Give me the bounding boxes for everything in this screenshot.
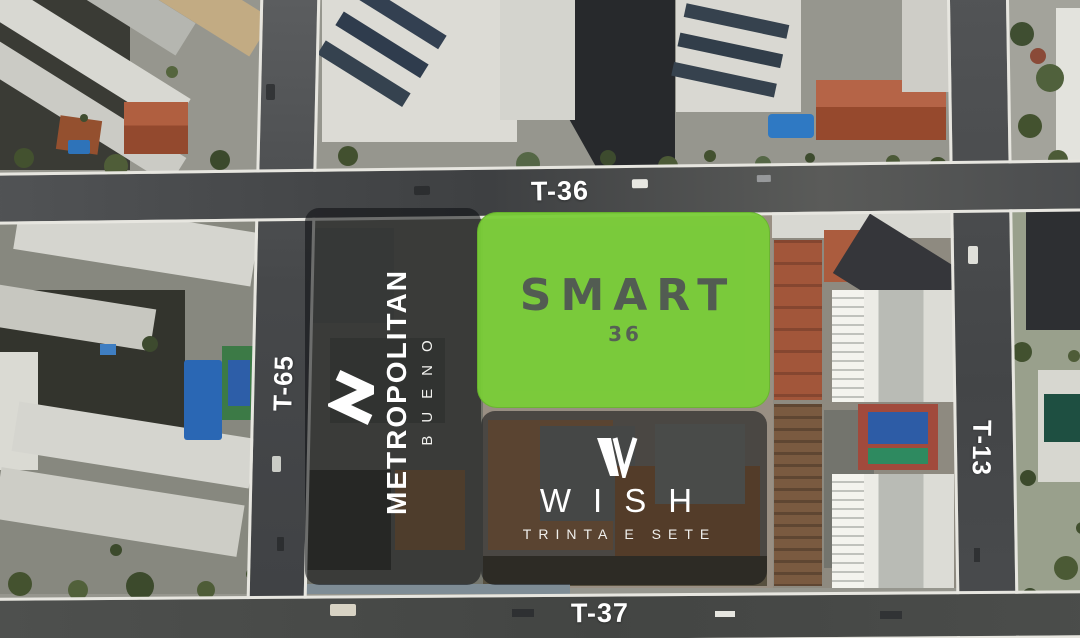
building — [500, 0, 575, 120]
pool — [1044, 394, 1080, 442]
warehouse-roof — [774, 404, 822, 586]
street-label-t13: T-13 — [936, 402, 1027, 493]
tree-cluster — [1012, 342, 1032, 362]
building — [902, 0, 954, 92]
tree-cluster — [14, 148, 34, 168]
balconies — [832, 474, 864, 588]
sports-court — [858, 404, 938, 470]
canopy — [300, 584, 570, 594]
street-label-t37: T-37 — [545, 596, 655, 631]
smart-brand-text: SMART — [511, 274, 736, 318]
street-t13 — [947, 0, 1019, 638]
street-label-t65: T-65 — [237, 337, 329, 429]
building — [1026, 210, 1080, 330]
tree-cluster — [338, 146, 358, 166]
aerial-site-map: SMART 36 METROPOLITAN BUENO WISH TRINTA … — [0, 0, 1080, 638]
wish-logo: WISH TRINTA E SETE — [486, 436, 746, 566]
pool — [768, 114, 814, 138]
smart-logo: SMART 36 — [477, 212, 770, 408]
building — [1056, 8, 1080, 160]
wish-brand-text: WISH — [518, 484, 714, 517]
balconies — [832, 290, 864, 402]
metropolitan-logo: METROPOLITAN BUENO — [328, 253, 458, 533]
tower-building — [832, 290, 954, 402]
red-tree — [1030, 48, 1046, 64]
metropolitan-m-chevron-icon — [328, 360, 374, 426]
terracotta-roof — [774, 240, 822, 400]
tree-cluster — [1010, 22, 1034, 46]
smart-lot-highlight: SMART 36 — [477, 212, 770, 408]
tree-cluster — [8, 572, 32, 596]
car — [414, 186, 430, 195]
truck — [330, 604, 356, 616]
street-label-t36: T-36 — [505, 173, 616, 209]
metropolitan-subtitle-text: BUENO — [419, 327, 436, 458]
car — [266, 84, 275, 100]
court-center — [868, 412, 928, 444]
metropolitan-brand-text: METROPOLITAN — [383, 269, 411, 517]
wish-subtitle-text: TRINTA E SETE — [516, 526, 716, 542]
pool — [868, 448, 928, 464]
terracotta-roof — [124, 102, 188, 154]
street-t37 — [0, 590, 1080, 638]
pool — [68, 140, 90, 154]
pool — [100, 344, 116, 355]
smart-unit-number: 36 — [605, 322, 642, 346]
car — [968, 246, 978, 264]
wish-w-mark-icon — [594, 436, 638, 478]
pool — [184, 360, 222, 440]
